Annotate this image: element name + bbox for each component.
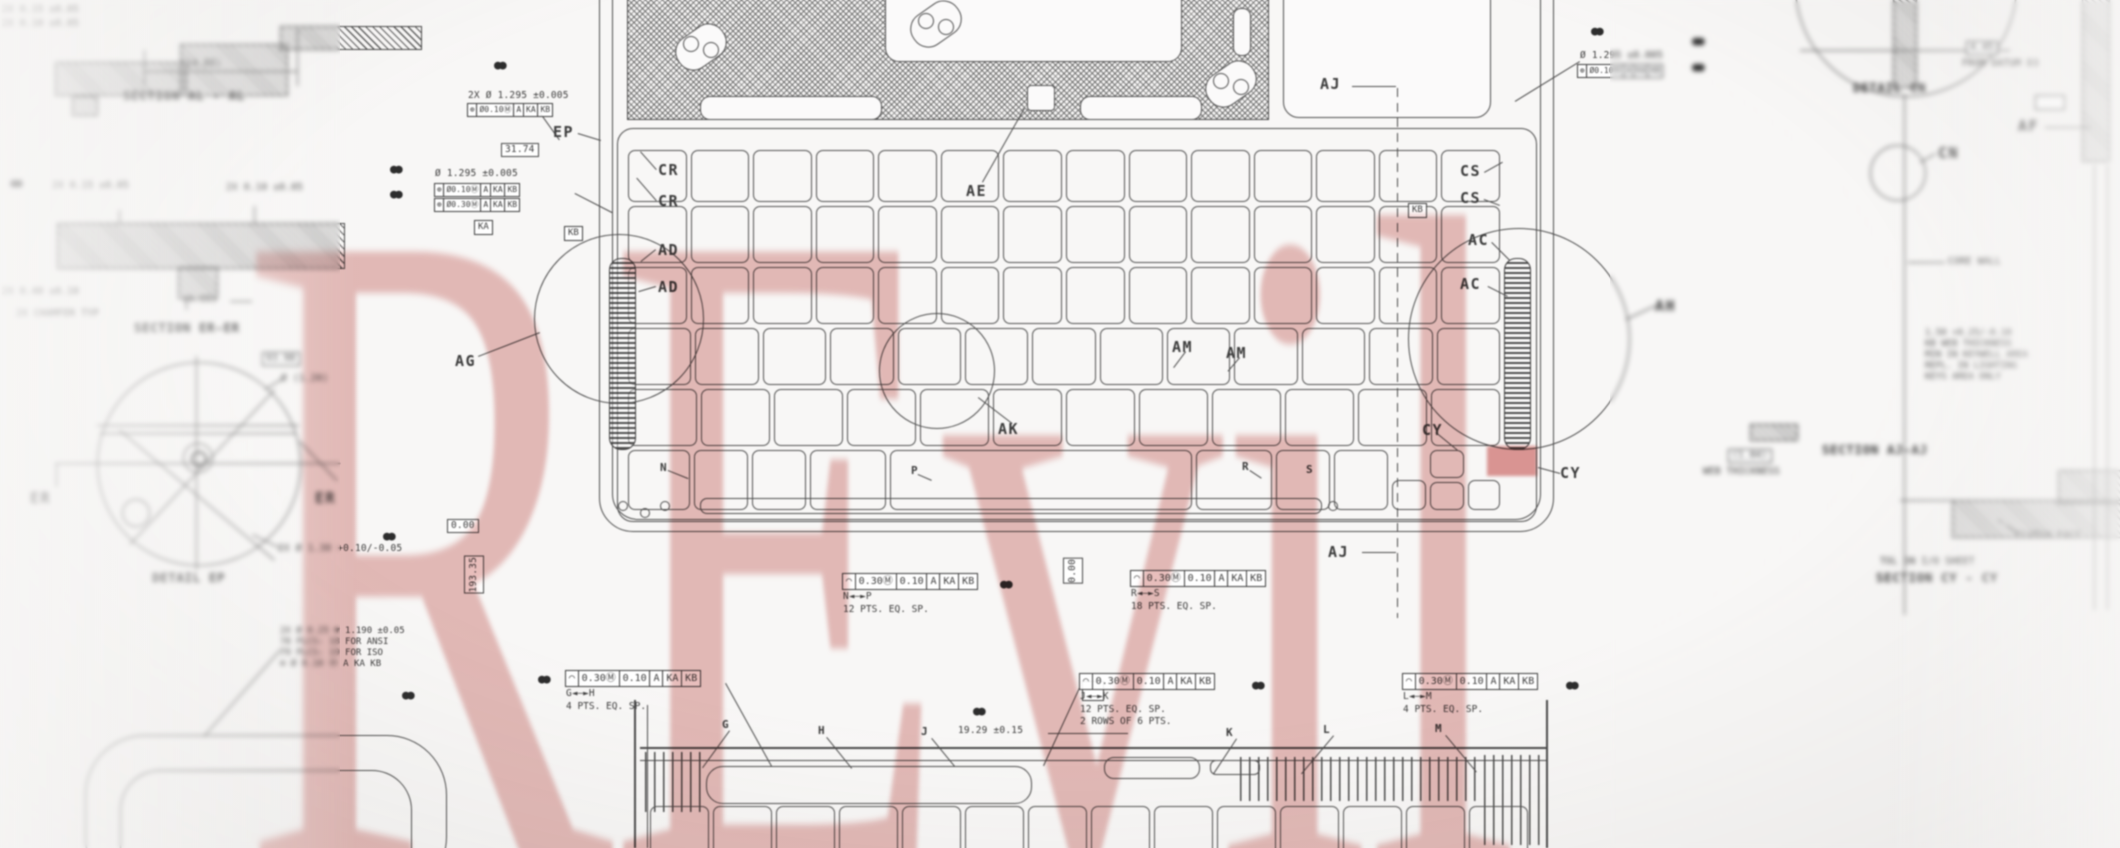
stem-line: [83, 94, 84, 96]
section-title: SECTION CY - CY: [1876, 570, 1998, 585]
section-title: SECTION AL - AL: [123, 88, 245, 103]
note-line: KEYS AREA ONLY: [1925, 372, 2028, 383]
right-edge-line: [2107, 165, 2108, 610]
bottom-view-key: [1406, 806, 1465, 848]
dimension-text: 2X Ø 1.30 +0.10/-0.05: [278, 543, 402, 554]
dimension-text: 2X 0.40 ±0.10: [2, 286, 79, 297]
dimension-text: 2X CHAMFER TYP: [16, 308, 99, 319]
ext-line: [297, 30, 298, 86]
dimension-text: 2X Ø 1.295 ±0.005: [468, 90, 569, 101]
fcf-cell: 0.30Ⓜ: [1092, 673, 1134, 690]
drawing-layer: EPCRCRADADAGAEAJAMAMAKCSCSACACAHCYCYERER…: [0, 0, 2120, 848]
cn-datum-box: [2035, 95, 2065, 110]
keyboard-key: [753, 206, 812, 263]
section-title: DETAIL CN: [1853, 80, 1926, 95]
keyboard-key: [1003, 267, 1062, 324]
rail-hole: [618, 501, 628, 511]
detail-circle-ak: [879, 313, 995, 429]
bottom-view-key: [902, 806, 961, 848]
callout-label-cy: CY: [1560, 464, 1581, 482]
keyboard-key: [753, 267, 812, 324]
section-al-stub: [72, 96, 98, 116]
screw-hole: [938, 19, 954, 35]
surround-bottom-pill: [700, 96, 882, 120]
centerline-h: [55, 463, 340, 464]
dimension-text: 0.00: [1063, 558, 1083, 584]
fcf-cells: ⊕Ø0.10ⓂAKAKB: [468, 103, 553, 117]
fcf-cell: KA: [490, 198, 506, 212]
bottom-rail-bar: [700, 498, 1322, 514]
ext-line: [254, 206, 255, 223]
keyboard-key: [1254, 267, 1313, 324]
fcf-cell: Ø0.10Ⓜ: [1586, 64, 1624, 78]
fcf-cell: KA: [1227, 570, 1247, 587]
aj-arrow-top: [1352, 86, 1396, 87]
ext-line: [144, 50, 145, 86]
fcf-cell: KB: [537, 103, 553, 117]
dimension-text: 31.74: [501, 143, 539, 157]
note-leader: [203, 649, 281, 737]
cy-section-step: [2058, 470, 2120, 504]
keyboard-key: [1285, 389, 1354, 446]
dimension-text: WEB THICKNESS: [1703, 466, 1780, 477]
keyboard-key: [1334, 450, 1388, 510]
callout-label-ep: EP: [553, 123, 574, 141]
callout-label-ah: AH: [1655, 297, 1676, 315]
bottom-view-key: [1469, 806, 1528, 848]
dimension-text: FROM DATUM D3: [1962, 58, 2039, 69]
cn-centerline: [1904, 94, 1905, 615]
callout-label-ae: AE: [966, 182, 987, 200]
keyboard-key: [1066, 150, 1125, 202]
note-flag-pair: ●●: [538, 672, 548, 687]
note-flag-pair: ●●: [1000, 577, 1010, 592]
keyboard-key: [816, 150, 875, 202]
keyboard-key: [1191, 206, 1250, 263]
leader: [230, 301, 252, 302]
fcf-cell: KA: [1176, 673, 1196, 690]
fcf-sub-label: 4 PTS. EQ. SP.: [566, 702, 701, 713]
dimension-text: 19.29 ±0.15: [958, 725, 1023, 736]
note-line: REPL. IN LIGHTING: [1925, 361, 2028, 372]
fcf-cells: ⊕Ø0.10ⓂAKAKB: [435, 183, 520, 197]
note-flag-pair: ●●: [1566, 678, 1576, 693]
arrow-key-right: [1468, 480, 1500, 510]
keyboard-key: [1254, 150, 1313, 202]
core-wall-arrow: [1908, 262, 1945, 263]
fcf-cell: KA: [490, 183, 506, 197]
note-line: KB WEB THICKNESS: [1925, 339, 2028, 350]
note-block: 1.50 +0.25/-0.10KB WEB THICKNESSMIN IN K…: [1925, 328, 2028, 383]
keyboard-key: [1316, 150, 1375, 202]
gdt-frame-small: ⊕Ø0.10ⓂAKAKB: [468, 103, 553, 117]
keyboard-key: [878, 206, 937, 263]
callout-label-cs: CS: [1460, 162, 1481, 180]
gdt-feature-control-frame: ◠0.30Ⓜ0.10AKAKBL◄—►M4 PTS. EQ. SP.: [1403, 673, 1538, 715]
fcf-cells: ◠0.30Ⓜ0.10AKAKB: [843, 573, 978, 590]
callout-label-aj: AJ: [1328, 543, 1349, 561]
note-line: 1.50 +0.25/-0.10: [1925, 328, 2028, 339]
arrow-key-down: [1430, 482, 1464, 510]
keyboard-key: [1066, 206, 1125, 263]
callout-label-ak: AK: [998, 420, 1019, 438]
keyboard-key: [816, 206, 875, 263]
keyboard-key: [763, 328, 826, 385]
keyboard-key: [1100, 328, 1163, 385]
note-flag-pair: ●●: [1692, 34, 1702, 49]
bottom-view-key: [1343, 806, 1402, 848]
keyboard-key: [1129, 206, 1188, 263]
bottom-view-key: [1154, 806, 1213, 848]
bottom-left-detail-inner: [120, 770, 412, 848]
dimension-text: 93.98: [262, 352, 300, 366]
dim-line-1929: [1048, 733, 1128, 734]
schematic-canvas: EPCRCRADADAGAEAJAMAMAKCSCSACACAHCYCYERER…: [0, 0, 2120, 848]
dimension-text: 193.35: [464, 556, 484, 594]
keyboard-key: [628, 450, 690, 510]
gdt-frame-small: ⊕Ø0.10ⓂAKAKB: [1578, 64, 1663, 78]
ext-line: [119, 210, 120, 223]
dimension-text: Ø 1.295 ±0.005: [435, 168, 518, 179]
note-flag-pair: ●●: [1692, 60, 1702, 75]
keyboard-key: [1316, 267, 1375, 324]
leader-line: [725, 683, 772, 767]
leader-line: [578, 133, 601, 141]
leader-line: [478, 332, 540, 357]
fcf-cell: KB: [504, 198, 520, 212]
callout-label-aj: AJ: [1320, 75, 1341, 93]
note-flag-pair: ●●: [383, 529, 393, 544]
section-er-bar: [57, 223, 345, 269]
detail-circle-ah: [1408, 228, 1630, 450]
note-flag-pair: ●●: [1252, 678, 1262, 693]
rail-hole: [660, 501, 670, 511]
dimension-text: 2X 0.10 ±0.05: [226, 182, 303, 193]
section-title: SECTION AJ-AJ: [1822, 442, 1928, 457]
note-flag-pair: ●●: [10, 176, 20, 191]
fcf-cell: Ø0.10Ⓜ: [476, 103, 514, 117]
fcf-cells: ⊕Ø0.10ⓂAKAKB: [1578, 64, 1663, 78]
screw-hole: [1233, 79, 1249, 95]
aj-section-sliver: [1750, 424, 1798, 441]
er-leader-right: [299, 441, 337, 481]
dimension-text: TOL ON I/O SHEET: [1880, 556, 1975, 567]
right-edge-line: [2094, 165, 2095, 610]
datum-box-kb: KB: [564, 226, 583, 241]
bottom-view-key: [776, 806, 835, 848]
aj-arrow-bottom: [1362, 552, 1396, 553]
cy-ext-line: [1900, 500, 1952, 501]
fcf-cell: KB: [1246, 570, 1266, 587]
keyboard-key: [753, 150, 812, 202]
callout-label-ad: AD: [658, 241, 679, 259]
dimension-text: 4.45: [1966, 41, 1998, 55]
screw-hole: [918, 13, 934, 29]
fcf-sub-label: G◄—►H: [566, 689, 701, 700]
bottom-view-key: [1091, 806, 1150, 848]
fcf-sub-label: 2 ROWS OF 6 PTS.: [1080, 717, 1215, 728]
keyboard-key: [1066, 267, 1125, 324]
keyboard-key: [691, 206, 750, 263]
callout-label-ad: AD: [658, 278, 679, 296]
dimension-text: Ø (1.20): [281, 373, 328, 384]
dimension-text: 2X 0.15 ±0.05: [52, 180, 129, 191]
dimension-text: CORE WALL: [1948, 256, 2001, 267]
corner-dim-stack: 2X 0.15 ±0.05: [2, 4, 79, 15]
note-block: 2X Ø 0.25 ▼ 1.190 ±0.0578 PLCS: 18 FOR A…: [280, 626, 405, 670]
fcf-cell: KA: [523, 103, 539, 117]
fcf-cells: ⊕Ø0.30ⓂAKAKB: [435, 198, 520, 212]
leader-line: [1043, 688, 1080, 766]
arrow-key-up: [1430, 450, 1464, 478]
section-title: DETAIL EP: [152, 570, 225, 585]
battery-opening: [1283, 0, 1491, 118]
leader-line: [702, 730, 730, 768]
point-letter-j: J: [921, 725, 928, 738]
callout-label-cs: CS: [1460, 189, 1481, 207]
keyboard-key: [1358, 389, 1427, 446]
fcf-cell: KA: [1499, 673, 1519, 690]
gdt-frame-small: ⊕Ø0.30ⓂAKAKB: [435, 198, 520, 212]
bottom-view-edge: [635, 700, 637, 848]
callout-label-er: ER: [30, 489, 51, 507]
callout-label-ac: AC: [1460, 275, 1481, 293]
fcf-cell: 0.30Ⓜ: [855, 573, 897, 590]
keyboard-key: [1379, 150, 1438, 202]
cn-hatch-bar: [1893, 0, 1917, 88]
keyboard-key: [878, 150, 937, 202]
keyboard-key: [1066, 389, 1135, 446]
fcf-cells: ◠0.30Ⓜ0.10AKAKB: [566, 670, 701, 687]
fcf-cell: KB: [1647, 64, 1663, 78]
surround-square-cutout: [1027, 85, 1055, 111]
bottom-view-key: [650, 806, 709, 848]
surround-bottom-pill: [1080, 96, 1202, 120]
fcf-cell: KB: [1195, 673, 1215, 690]
detail-ep-small-circle: [122, 499, 150, 527]
fcf-cell: 0.10: [1456, 673, 1488, 690]
keyboard-key: [1003, 150, 1062, 202]
datum-box-kb: KB: [1408, 203, 1427, 218]
bottom-view-key: [1217, 806, 1276, 848]
fcf-sub-label: 12 PTS. EQ. SP.: [1080, 705, 1215, 716]
bottom-view-edge: [1547, 700, 1549, 848]
note-line: MIN IN KEYWELL AREA: [1925, 350, 2028, 361]
callout-label-ag: AG: [455, 352, 476, 370]
dimension-text: CLUTCH FACE: [2016, 530, 2081, 541]
fcf-cell: KA: [662, 670, 682, 687]
keyboard-key: [1316, 206, 1375, 263]
fcf-cell: KA: [1633, 64, 1649, 78]
corner-dim-stack: 2X 0.10 ±0.05: [2, 18, 79, 29]
callout-label-am: AM: [1172, 338, 1193, 356]
point-letter-r: R: [1242, 460, 1249, 473]
bottom-pill: [1104, 757, 1200, 779]
leader-line: [826, 737, 852, 769]
note-flag-pair: ●●: [1591, 24, 1601, 39]
section-al-bar: [280, 26, 422, 50]
cn-small-circle: [1870, 145, 1926, 201]
point-letter-m: M: [1435, 722, 1442, 735]
note-line: 2X Ø 0.25 ▼ 1.190 ±0.05: [280, 626, 405, 637]
bottom-spacebar-outline: [706, 766, 1032, 804]
er-arrow-left: [56, 463, 57, 487]
keyboard-key: [1167, 328, 1230, 385]
note-line: 79 PLCS: 19 FOR ISO: [280, 648, 405, 659]
leader-line: [1626, 305, 1656, 320]
dimension-text: Ø 1.295 ±0.005: [1580, 50, 1663, 61]
detail-circle-ag: [534, 234, 704, 404]
callout-label-er: ER: [315, 489, 336, 507]
fcf-cell: KB: [504, 183, 520, 197]
leader-line: [931, 738, 955, 767]
note-line: 78 PLCS: 18 FOR ANSI: [280, 637, 405, 648]
keyboard-key: [1212, 389, 1281, 446]
keyboard-key: [816, 267, 875, 324]
fcf-cell: Ø0.10Ⓜ: [443, 183, 481, 197]
point-letter-n: N: [660, 461, 667, 474]
screw-hole: [683, 36, 699, 52]
screw-hole: [703, 42, 719, 58]
callout-label-ac: AC: [1468, 231, 1489, 249]
fcf-sub-label: J◄—►K: [1080, 692, 1215, 703]
point-letter-p: P: [911, 464, 918, 477]
bottom-view-comb: [645, 752, 701, 812]
keyboard-key: [1191, 150, 1250, 202]
fcf-cell: 0.30Ⓜ: [578, 670, 620, 687]
surround-slot-cutout: [1233, 8, 1251, 56]
rail-hole: [640, 508, 650, 518]
point-letter-l: L: [1323, 723, 1330, 736]
fcf-cells: ◠0.30Ⓜ0.10AKAKB: [1080, 673, 1215, 690]
fcf-cell: 0.10: [619, 670, 651, 687]
dimension-text: (14.88): [180, 58, 221, 69]
point-letter-k: K: [1226, 726, 1233, 739]
fcf-cells: ◠0.30Ⓜ0.10AKAKB: [1403, 673, 1538, 690]
aj-section-line: [1397, 88, 1398, 618]
fcf-sub-label: L◄—►M: [1403, 692, 1538, 703]
keyboard-key: [1129, 150, 1188, 202]
fcf-cell: 0.30Ⓜ: [1415, 673, 1457, 690]
bottom-view-key: [713, 806, 772, 848]
fcf-cell: KB: [681, 670, 701, 687]
bottom-view-key: [965, 806, 1024, 848]
right-edge-hatch: [2082, 0, 2110, 162]
bottom-view-key: [1028, 806, 1087, 848]
bottom-view-key: [1280, 806, 1339, 848]
fcf-cell: KB: [1518, 673, 1538, 690]
fcf-sub-label: R◄—►S: [1131, 589, 1266, 600]
callout-label-cr: CR: [658, 192, 679, 210]
point-letter-h: H: [818, 724, 825, 737]
keyboard-key: [1191, 267, 1250, 324]
note-flag-pair: ●●: [402, 688, 412, 703]
callout-label-cn: CN: [1938, 144, 1959, 162]
fcf-sub-label: N◄—►P: [843, 592, 978, 603]
keyboard-key: [1129, 267, 1188, 324]
keyboard-key: [1032, 328, 1095, 385]
dimension-text: (1.04): [1728, 449, 1772, 463]
fcf-cell: 0.30Ⓜ: [1143, 570, 1185, 587]
fcf-sub-label: 18 PTS. EQ. SP.: [1131, 602, 1266, 613]
fcf-cell: Ø0.30Ⓜ: [443, 198, 481, 212]
point-letter-g: G: [722, 718, 729, 731]
rail-hole: [1328, 501, 1338, 511]
note-flag-pair: ●●: [973, 704, 983, 719]
fcf-cell: 0.10: [1184, 570, 1216, 587]
keyboard-key: [1254, 206, 1313, 263]
keyboard-key: [691, 150, 750, 202]
chord-line: [97, 425, 299, 426]
screw-hole: [1213, 73, 1229, 89]
red-highlight-rect: [1487, 446, 1537, 476]
bottom-view-comb: [1240, 757, 1480, 801]
fcf-sub-label: 4 PTS. EQ. SP.: [1403, 705, 1538, 716]
keyboard-key: [774, 389, 843, 446]
gdt-feature-control-frame: ◠0.30Ⓜ0.10AKAKBR◄—►S18 PTS. EQ. SP.: [1131, 570, 1266, 612]
datum-box-ka: KA: [474, 220, 493, 235]
callout-label-cr: CR: [658, 161, 679, 179]
keyboard-key: [701, 389, 770, 446]
bottom-view-key: [839, 806, 898, 848]
keyboard-key: [1003, 206, 1062, 263]
callout-label-cy: CY: [1422, 421, 1443, 439]
keyboard-key: [941, 206, 1000, 263]
gdt-feature-control-frame: ◠0.30Ⓜ0.10AKAKBJ◄—►K12 PTS. EQ. SP.2 ROW…: [1080, 673, 1215, 728]
fcf-cell: KA: [939, 573, 959, 590]
gdt-feature-control-frame: ◠0.30Ⓜ0.10AKAKBN◄—►P12 PTS. EQ. SP.: [843, 573, 978, 615]
chord-line: [100, 433, 296, 434]
note-flag-pair: ●●: [390, 162, 400, 177]
point-letter-s: S: [1306, 463, 1313, 476]
dimension-text: (0.15): [182, 294, 218, 305]
dim-line: [145, 71, 298, 72]
note-flag-pair: ●●: [390, 187, 400, 202]
fcf-cell: 0.10: [1133, 673, 1165, 690]
keyboard-key: [1139, 389, 1208, 446]
callout-label-af: AF: [2018, 117, 2039, 135]
note-flag-pair: ●●: [494, 58, 504, 73]
fcf-cell: KB: [958, 573, 978, 590]
note-line: ⊕ Ø 0.10 Ⓜ A KA KB: [280, 659, 405, 670]
section-title: SECTION ER-ER: [134, 320, 240, 335]
keyboard-key: [1302, 328, 1365, 385]
dimension-text: 0.00: [447, 519, 479, 533]
gdt-frame-small: ⊕Ø0.10ⓂAKAKB: [435, 183, 520, 197]
fcf-sub-label: 12 PTS. EQ. SP.: [843, 605, 978, 616]
keyboard-key: [695, 328, 758, 385]
bottom-view-rail: [640, 747, 1548, 749]
fcf-cells: ◠0.30Ⓜ0.10AKAKB: [1131, 570, 1266, 587]
fcf-cell: 0.10: [896, 573, 928, 590]
callout-label-am: AM: [1226, 344, 1247, 362]
gdt-feature-control-frame: ◠0.30Ⓜ0.10AKAKBG◄—►H4 PTS. EQ. SP.: [566, 670, 701, 712]
